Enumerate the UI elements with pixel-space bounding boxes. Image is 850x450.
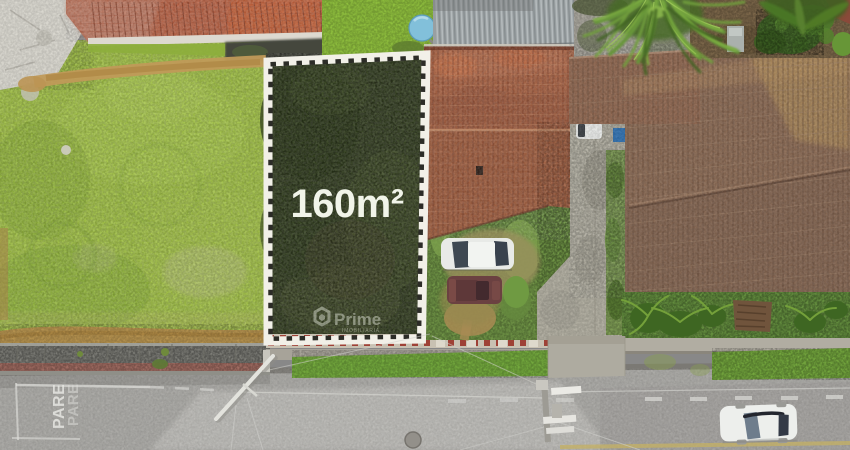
svg-text:Prime: Prime bbox=[334, 310, 381, 329]
svg-text:PARE: PARE bbox=[65, 383, 82, 426]
svg-text:IMOBILIARIA: IMOBILIARIA bbox=[342, 328, 380, 334]
svg-text:160m²: 160m² bbox=[290, 182, 403, 226]
